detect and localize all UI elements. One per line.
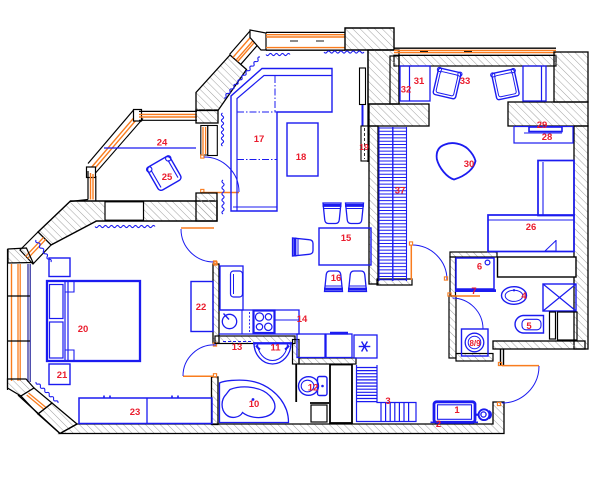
svg-text:17: 17: [254, 134, 265, 145]
svg-text:24: 24: [157, 138, 168, 149]
svg-text:29: 29: [537, 120, 548, 131]
svg-text:18: 18: [296, 152, 307, 163]
svg-text:30: 30: [464, 159, 475, 170]
svg-text:8/9: 8/9: [469, 339, 481, 348]
svg-text:7: 7: [471, 286, 476, 297]
svg-text:32: 32: [401, 85, 412, 96]
svg-text:21: 21: [57, 370, 68, 381]
svg-text:20: 20: [78, 324, 89, 335]
svg-text:5: 5: [526, 321, 532, 332]
svg-text:10: 10: [249, 399, 260, 410]
svg-text:6: 6: [477, 262, 482, 273]
svg-text:23: 23: [130, 407, 141, 418]
svg-text:1: 1: [454, 405, 460, 416]
svg-text:28: 28: [542, 132, 553, 143]
svg-text:22: 22: [196, 302, 207, 313]
svg-text:4: 4: [521, 291, 527, 302]
svg-text:25: 25: [162, 172, 173, 183]
svg-text:16: 16: [331, 273, 342, 284]
svg-text:37: 37: [395, 186, 406, 197]
svg-text:33: 33: [460, 76, 471, 87]
svg-text:2: 2: [436, 419, 441, 430]
svg-text:3: 3: [385, 396, 390, 407]
svg-text:11: 11: [270, 343, 281, 354]
svg-text:13: 13: [232, 342, 243, 353]
svg-text:19: 19: [359, 142, 369, 152]
svg-text:14: 14: [297, 314, 308, 325]
svg-text:15: 15: [341, 233, 352, 244]
svg-text:31: 31: [414, 76, 425, 87]
svg-text:12: 12: [308, 383, 319, 394]
svg-text:26: 26: [526, 222, 537, 233]
